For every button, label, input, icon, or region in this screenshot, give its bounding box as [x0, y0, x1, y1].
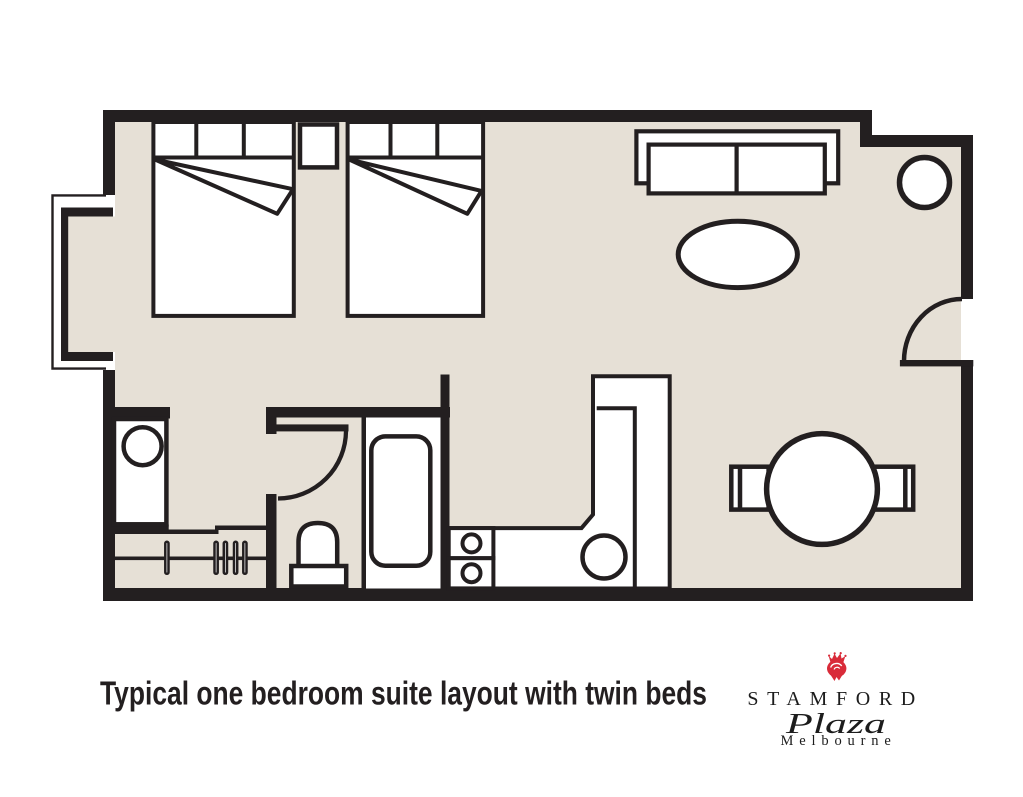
svg-text:STAMFORD: STAMFORD	[747, 688, 924, 710]
svg-text:Typical one bedroom suite layo: Typical one bedroom suite layout with tw…	[100, 676, 707, 713]
